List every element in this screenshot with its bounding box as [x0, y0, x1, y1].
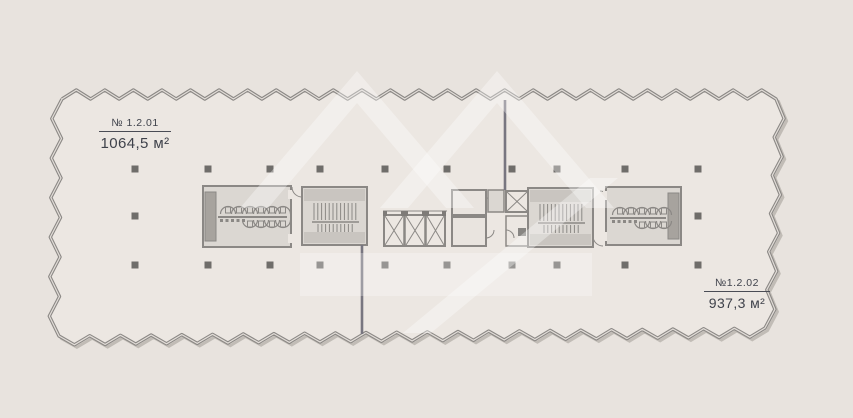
unit-number: №1.2.02	[697, 277, 777, 289]
unit-number: № 1.2.01	[92, 117, 178, 129]
column	[205, 166, 212, 173]
floor-plan-drawing	[0, 0, 853, 418]
column	[695, 262, 702, 269]
core-room	[488, 190, 504, 212]
column	[205, 262, 212, 269]
label-divider	[704, 291, 770, 292]
unit-area: 1064,5 м²	[92, 135, 178, 152]
column	[382, 166, 389, 173]
column	[444, 166, 451, 173]
unit-label-2: №1.2.02 937,3 м²	[697, 277, 777, 311]
column	[695, 166, 702, 173]
column	[132, 262, 139, 269]
column	[132, 166, 139, 173]
column	[695, 213, 702, 220]
column	[622, 262, 629, 269]
column	[509, 166, 516, 173]
core-room	[452, 217, 486, 246]
floorplan-canvas: № 1.2.01 1064,5 м² №1.2.02 937,3 м²	[0, 0, 853, 418]
unit-label-1: № 1.2.01 1064,5 м²	[92, 117, 178, 152]
label-divider	[99, 131, 171, 132]
column	[317, 166, 324, 173]
column	[132, 213, 139, 220]
column	[267, 262, 274, 269]
unit-area: 937,3 м²	[697, 295, 777, 311]
column	[622, 166, 629, 173]
